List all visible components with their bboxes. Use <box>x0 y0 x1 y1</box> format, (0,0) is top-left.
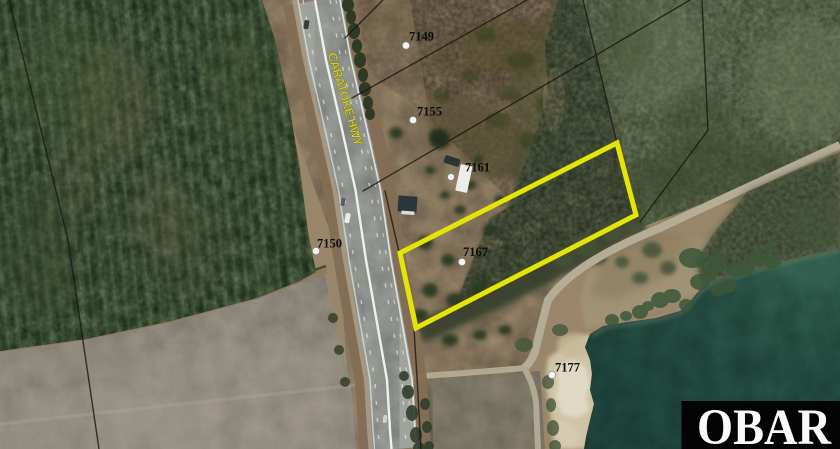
svg-text:OBAR: OBAR <box>697 400 832 449</box>
